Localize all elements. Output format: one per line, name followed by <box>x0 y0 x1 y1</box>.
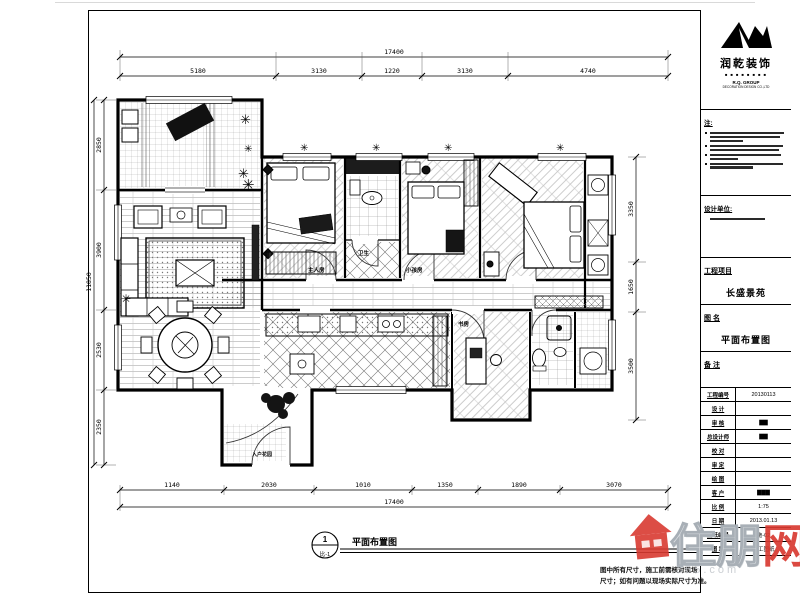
table-row: 设 计 <box>701 402 791 416</box>
drawing-name-section: 图 名 平面布置图 <box>701 305 791 352</box>
balcony-right-fixtures <box>580 348 606 374</box>
svg-text:1890: 1890 <box>511 481 527 489</box>
row-value: 2013.01.13 <box>736 514 791 527</box>
row-value: ▇▇ <box>736 430 791 443</box>
row-label: 工程编号 <box>701 388 736 401</box>
row-label: 校 对 <box>701 444 736 457</box>
table-row: 审 定 <box>701 458 791 472</box>
table-row: 图 章 施工图纸 <box>701 542 791 555</box>
plant-icon: ✳ <box>121 292 131 306</box>
table-row: 图纸编号 施-02 <box>701 528 791 542</box>
row-value: ▇▇▇ <box>736 486 791 499</box>
svg-text:1010: 1010 <box>355 481 371 489</box>
row-label: 审 定 <box>701 458 736 471</box>
door-label-bed1: 主人房 <box>308 266 325 274</box>
svg-text:11850: 11850 <box>85 272 93 292</box>
svg-text:✳: ✳ <box>444 143 452 154</box>
logo-squares: ■ ■ ■ ■ ■ ■ ■ ■ <box>704 72 788 77</box>
project-label: 工程项目 <box>704 268 732 275</box>
svg-text:17400: 17400 <box>384 48 404 56</box>
row-value <box>736 402 791 415</box>
svg-text:1140: 1140 <box>164 481 180 489</box>
marker-code: 比-1 <box>320 550 330 558</box>
table-row: 比 例 1:75 <box>701 500 791 514</box>
svg-text:✳: ✳ <box>372 143 380 154</box>
note-line-2: 尺寸；如有问题以现场实际尺寸为准。 <box>600 577 712 588</box>
table-row: 日 期 2013.01.13 <box>701 514 791 528</box>
window-plants: ✳ ✳ ✳ ✳ <box>300 143 564 154</box>
plant-icon: ✳ <box>240 112 251 127</box>
svg-text:2030: 2030 <box>261 481 277 489</box>
row-label: 绘 图 <box>701 472 736 485</box>
notes-text-placeholder <box>706 154 788 160</box>
svg-text:1650: 1650 <box>627 279 635 295</box>
door-label-bath: 卫生 <box>358 249 370 257</box>
entry-garden <box>261 392 295 419</box>
right-strip-fixtures <box>588 175 608 275</box>
notes-text-placeholder <box>706 132 788 142</box>
door-label-study: 书房 <box>458 320 470 328</box>
title-block-table: 工程编号 20130113 设 计 审 核 ▇▇ 总设计师 ▇▇ 校 对 审 定 <box>701 388 791 556</box>
design-unit-label: 设计单位: <box>704 206 732 213</box>
table-row: 总设计师 ▇▇ <box>701 430 791 444</box>
project-section: 工程项目 长盛景苑 <box>701 258 791 305</box>
title-block-empty <box>701 556 791 593</box>
svg-text:3900: 3900 <box>95 242 103 258</box>
door-label-bed2: 小孩房 <box>406 266 423 274</box>
notes-text-placeholder <box>706 145 788 151</box>
bed1-furniture <box>263 163 336 274</box>
svg-text:✳: ✳ <box>300 143 308 154</box>
table-row: 审 核 ▇▇ <box>701 416 791 430</box>
row-label: 图 章 <box>701 542 736 555</box>
row-label: 图纸编号 <box>701 528 736 541</box>
drawing-title-marker: 1 比-1 平面布置图 <box>312 532 698 558</box>
footer-drawing-title: 平面布置图 <box>352 536 397 547</box>
title-block: 润乾装饰 ■ ■ ■ ■ ■ ■ ■ ■ R.Q. GROUP DECORATI… <box>700 10 791 593</box>
company-english-name: DECORATION DESIGN CO.,LTD <box>708 85 784 89</box>
row-label: 客 户 <box>701 486 736 499</box>
marker-number: 1 <box>323 535 328 544</box>
svg-text:17400: 17400 <box>384 498 404 506</box>
door-label-entry: 入户花园 <box>252 451 272 458</box>
plant-icon: ✳ <box>244 144 252 155</box>
design-unit-text-placeholder <box>706 218 788 220</box>
table-row: 校 对 <box>701 444 791 458</box>
row-label: 日 期 <box>701 514 736 527</box>
row-value <box>736 458 791 471</box>
row-value: 20130113 <box>736 388 791 401</box>
dimension-disclaimer-note: 图中所有尺寸，施工前需核对现场 尺寸；如有问题以现场实际尺寸为准。 <box>600 566 712 587</box>
drawing-name-label: 图 名 <box>704 315 720 322</box>
row-value: 施工图纸 <box>736 542 791 555</box>
drawing-name-value: 平面布置图 <box>704 333 788 346</box>
svg-text:3350: 3350 <box>627 201 635 217</box>
row-value: 1:75 <box>736 500 791 513</box>
svg-text:1220: 1220 <box>384 67 400 75</box>
table-row: 客 户 ▇▇▇ <box>701 486 791 500</box>
floor-plan-drawing: ✳ ✳ ✳ ✳ ✳ <box>0 0 800 600</box>
mountain-logo-icon <box>719 18 773 50</box>
table-row: 工程编号 20130113 <box>701 388 791 402</box>
company-logo-block: 润乾装饰 ■ ■ ■ ■ ■ ■ ■ ■ R.Q. GROUP DECORATI… <box>701 10 791 110</box>
company-name: 润乾装饰 <box>704 55 788 71</box>
row-label: 比 例 <box>701 500 736 513</box>
row-label: 设 计 <box>701 402 736 415</box>
row-label: 总设计师 <box>701 430 736 443</box>
notes-section: 注: <box>701 110 791 196</box>
remark-label: 备 注 <box>704 362 720 369</box>
row-value: 施-02 <box>736 528 791 541</box>
row-value <box>736 444 791 457</box>
svg-text:2530: 2530 <box>95 342 103 358</box>
project-name: 长盛景苑 <box>704 286 788 299</box>
table-row: 绘 图 <box>701 472 791 486</box>
svg-text:3070: 3070 <box>606 481 622 489</box>
svg-text:1350: 1350 <box>437 481 453 489</box>
row-value <box>736 472 791 485</box>
remark-section: 备 注 <box>701 352 791 388</box>
row-value: ▇▇ <box>736 416 791 429</box>
svg-text:✳: ✳ <box>556 143 564 154</box>
note-line-1: 图中所有尺寸，施工前需核对现场 <box>600 566 712 577</box>
drawing-sheet: ✳ ✳ ✳ ✳ ✳ <box>0 0 800 600</box>
svg-text:3130: 3130 <box>311 67 327 75</box>
svg-text:2850: 2850 <box>95 137 103 153</box>
notes-text-placeholder <box>706 163 788 169</box>
svg-text:5180: 5180 <box>190 67 206 75</box>
svg-text:3500: 3500 <box>627 358 635 374</box>
notes-label: 注: <box>704 120 713 127</box>
design-unit-section: 设计单位: <box>701 196 791 258</box>
svg-text:2350: 2350 <box>95 419 103 435</box>
row-label: 审 核 <box>701 416 736 429</box>
svg-text:3130: 3130 <box>457 67 473 75</box>
plant-icon: ✳ <box>242 177 255 194</box>
svg-text:4740: 4740 <box>580 67 596 75</box>
